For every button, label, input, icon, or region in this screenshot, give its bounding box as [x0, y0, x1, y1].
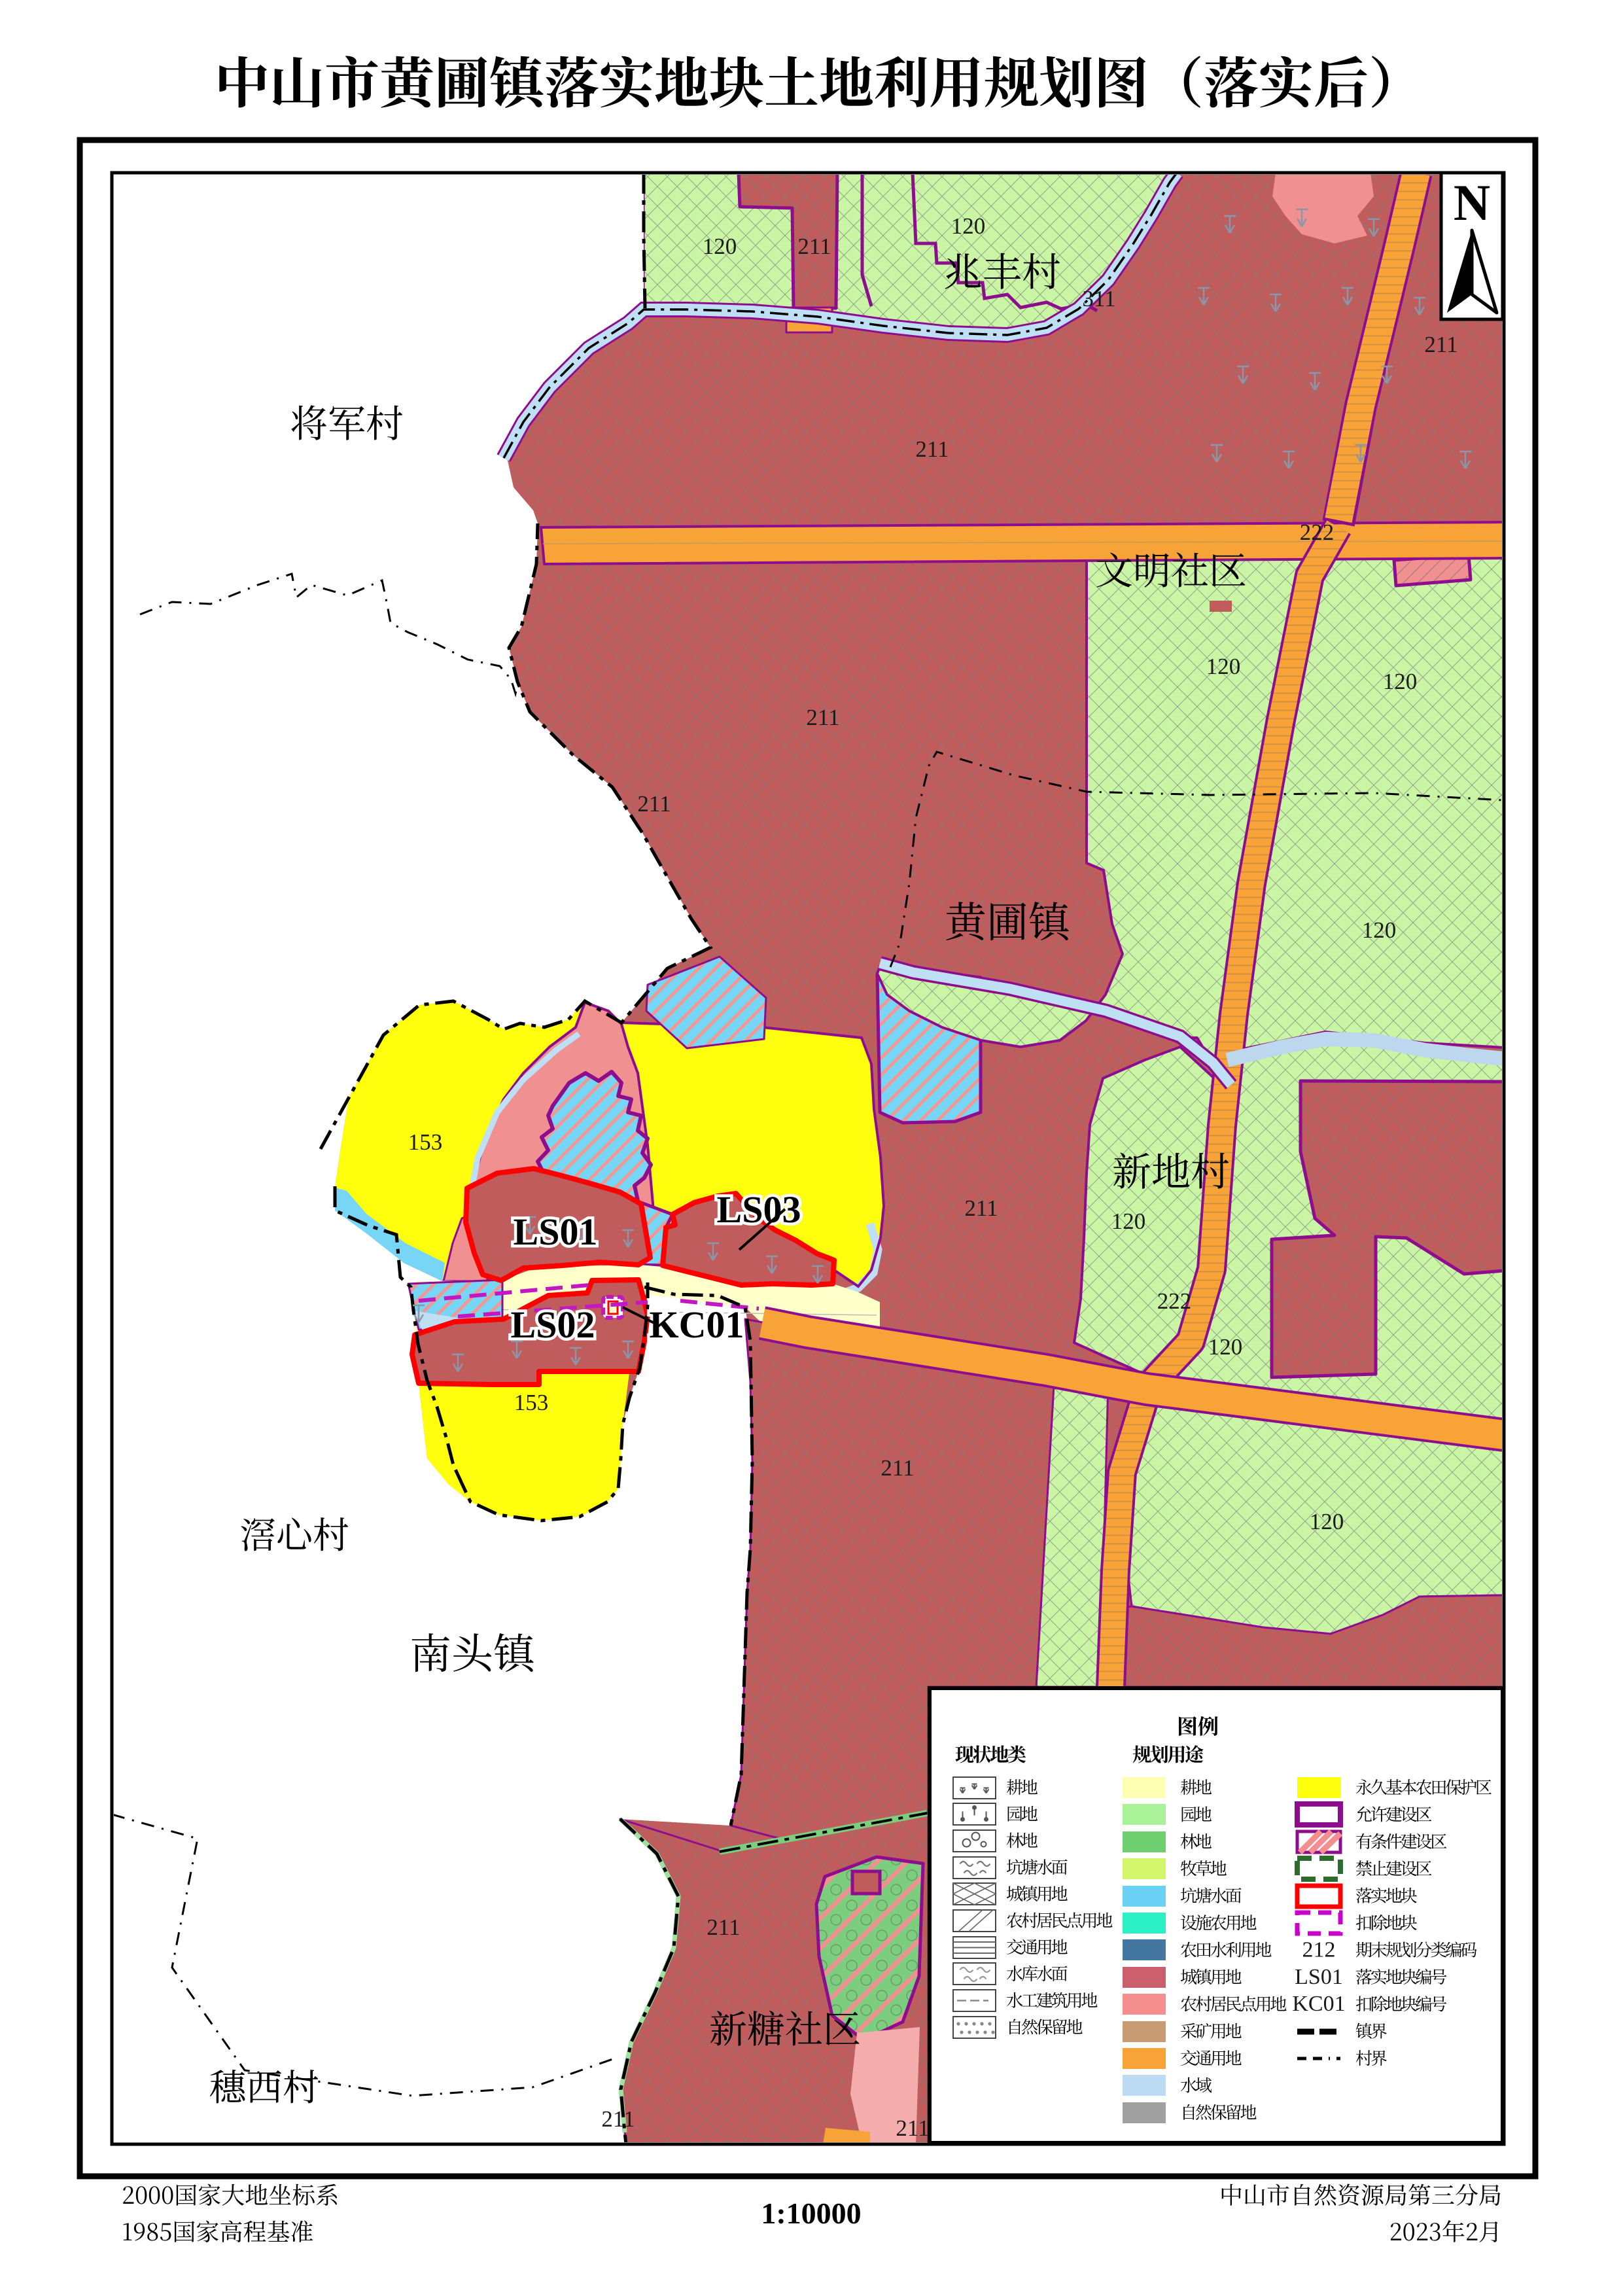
- svg-text:222: 222: [1157, 1288, 1192, 1314]
- svg-text:LS01: LS01: [514, 1210, 598, 1253]
- svg-text:1:10000: 1:10000: [761, 2197, 861, 2230]
- svg-text:211: 211: [797, 234, 831, 259]
- svg-text:211: 211: [707, 1915, 740, 1940]
- svg-text:120: 120: [703, 234, 737, 259]
- svg-text:LS02: LS02: [511, 1303, 595, 1346]
- svg-text:211: 211: [896, 2115, 929, 2141]
- svg-text:211: 211: [806, 705, 839, 730]
- svg-text:211: 211: [881, 1455, 914, 1481]
- svg-text:120: 120: [1383, 669, 1418, 694]
- svg-text:120: 120: [1206, 654, 1241, 679]
- svg-text:211: 211: [1424, 332, 1457, 357]
- svg-text:120: 120: [1208, 1334, 1243, 1360]
- svg-text:120: 120: [1310, 1509, 1344, 1534]
- svg-text:LS03: LS03: [717, 1188, 801, 1231]
- svg-text:222: 222: [1300, 520, 1335, 545]
- svg-text:211: 211: [601, 2106, 635, 2132]
- svg-text:N: N: [1454, 174, 1490, 231]
- svg-text:KC01: KC01: [650, 1303, 744, 1346]
- svg-text:153: 153: [408, 1129, 443, 1155]
- svg-text:211: 211: [964, 1195, 998, 1221]
- svg-text:120: 120: [1111, 1209, 1146, 1234]
- svg-text:LS01: LS01: [1295, 1965, 1343, 1989]
- svg-text:211: 211: [637, 791, 671, 817]
- svg-text:212: 212: [1302, 1937, 1336, 1962]
- svg-text:153: 153: [514, 1390, 549, 1415]
- svg-text:120: 120: [951, 213, 986, 239]
- svg-text:311: 311: [1082, 286, 1115, 311]
- svg-text:KC01: KC01: [1292, 1992, 1345, 2016]
- svg-text:211: 211: [915, 436, 949, 462]
- svg-text:120: 120: [1362, 917, 1397, 943]
